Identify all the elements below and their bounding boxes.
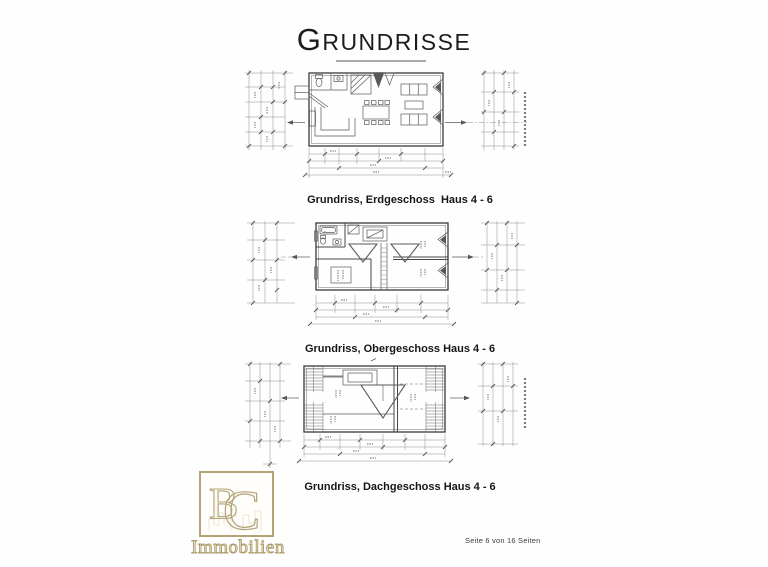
interior <box>323 359 405 419</box>
logo-monogram: B C <box>201 473 272 535</box>
interior-partitions <box>316 223 448 290</box>
floorplan-erdgeschoss-drawing <box>235 62 535 186</box>
document-page: Grundrisse <box>0 0 768 567</box>
dimension-chain-bottom <box>310 295 454 324</box>
dimension-chain-left <box>245 70 293 150</box>
logo-wordmark: Immobilien <box>180 537 296 559</box>
door-swing <box>440 266 446 275</box>
arrow-right <box>468 255 474 259</box>
room-labels <box>331 390 415 424</box>
caption-obergeschoss: Grundriss, Obergeschoss Haus 4 - 6 <box>235 343 565 355</box>
arrow-left <box>281 396 287 400</box>
caption-dachgeschoss: Grundriss, Dachgeschoss Haus 4 - 6 <box>235 481 565 493</box>
floorplan-obergeschoss-drawing <box>235 215 535 340</box>
dimension-chain-right <box>481 70 519 150</box>
floorplan-dachgeschoss-drawing <box>235 356 535 474</box>
dimension-chain-left <box>247 221 295 303</box>
page-number: Seite 6 von 16 Seiten <box>465 536 541 545</box>
floorplan-obergeschoss <box>235 215 535 340</box>
arrow-right <box>464 396 470 400</box>
floorplan-erdgeschoss <box>235 62 535 186</box>
arrow-left <box>291 255 297 259</box>
dimension-chain-left <box>245 362 291 468</box>
page-title: Grundrisse <box>0 22 768 58</box>
dimension-chain-right <box>478 362 518 446</box>
caption-erdgeschoss: Grundriss, Erdgeschoss Haus 4 - 6 <box>235 194 565 206</box>
furniture <box>363 79 443 125</box>
monogram-letter-c: C <box>223 480 260 535</box>
arrow-left <box>287 120 293 124</box>
company-logo: B C <box>199 471 274 537</box>
stair-door-swing <box>373 73 384 88</box>
floorplan-dachgeschoss <box>235 356 535 474</box>
dimension-chain-right <box>481 221 525 303</box>
door-swing <box>440 235 446 244</box>
arrow-right <box>461 120 467 124</box>
